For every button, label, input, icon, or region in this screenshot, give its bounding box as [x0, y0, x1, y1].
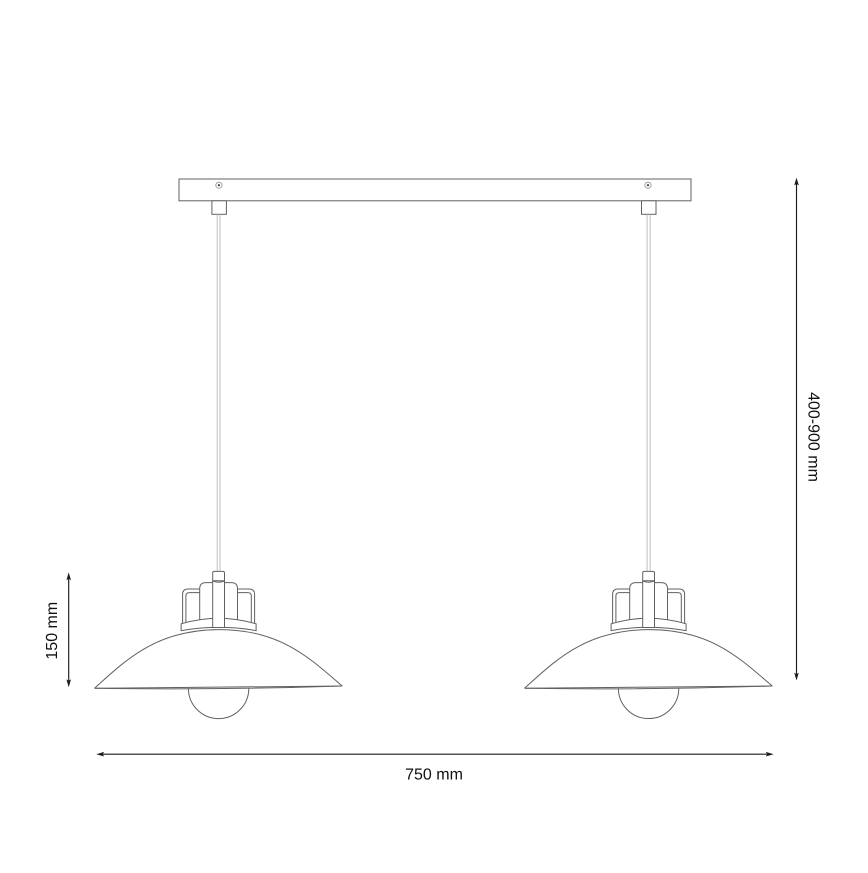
svg-text:150 mm: 150 mm — [44, 602, 61, 660]
svg-text:400-900 mm: 400-900 mm — [804, 392, 821, 482]
svg-text:750 mm: 750 mm — [405, 767, 463, 784]
